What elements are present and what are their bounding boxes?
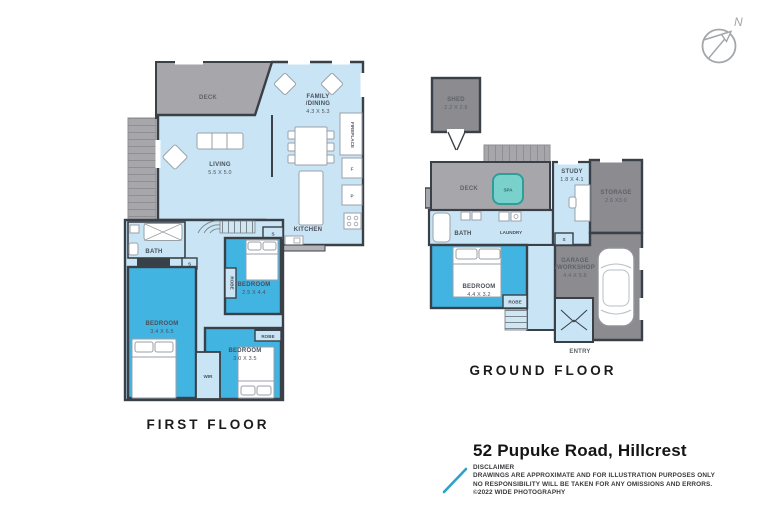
spa-label: SPA <box>503 188 513 193</box>
first-floor-caption: FIRST FLOOR <box>128 417 288 432</box>
storage-room <box>590 160 642 233</box>
storage-label: STORAGE <box>600 190 631 196</box>
photography-logo-icon <box>440 466 470 496</box>
robe-2-label: ROBE <box>230 276 235 289</box>
study-label: STUDY <box>561 169 583 175</box>
garage-label-1: GARAGE <box>561 258 589 264</box>
robe-label: ROBE <box>508 300 521 305</box>
shed-label: SHED <box>447 97 465 103</box>
disclaimer-heading: DISCLAIMER <box>473 464 750 472</box>
basin-icon <box>130 225 139 233</box>
disclaimer-line-2: NO RESPONSIBILITY WILL BE TAKEN FOR ANY … <box>473 481 750 489</box>
family-label-2: /DINING <box>306 101 331 107</box>
desk-icon <box>575 185 590 221</box>
title-block: 52 Pupuke Road, Hillcrest DISCLAIMER DRA… <box>440 441 750 497</box>
living-dims: 5.5 X 5.0 <box>208 170 231 176</box>
deck-stairs <box>484 145 550 162</box>
washer-icon <box>499 212 509 221</box>
garage-label-2: /WORKSHOP <box>555 265 595 271</box>
disclaimer-line-1: DRAWINGS ARE APPROXIMATE AND FOR ILLUSTR… <box>473 472 750 480</box>
dryer-icon <box>511 212 521 221</box>
floorplan-sheet: FIREPLACE F P <box>0 0 768 512</box>
wir-label: WIR <box>204 374 214 379</box>
cupboard-kitchen-label: S <box>271 232 274 237</box>
wardrobe-band <box>137 258 170 266</box>
fireplace-label: FIREPLACE <box>350 122 355 148</box>
deck-area <box>156 62 272 118</box>
deck-label: DECK <box>199 95 217 101</box>
bathtub <box>433 213 450 242</box>
bath-label: BATH <box>145 249 162 255</box>
ground-floor-caption: GROUND FLOOR <box>453 363 633 378</box>
toilet-icon <box>129 243 138 255</box>
bedroom1-label: BEDROOM <box>145 321 178 327</box>
shed-dims: 2.2 X 2.6 <box>444 105 467 111</box>
disclaimer-line-3: ©2022 WIDE PHOTOGRAPHY <box>473 489 750 497</box>
stair-treads <box>220 221 255 233</box>
fridge-label: F <box>351 167 354 172</box>
bedroom2-dims: 2.5 X 4.4 <box>242 290 265 296</box>
bed-3 <box>238 347 274 398</box>
bedroom-dims: 4.4 X 3.2 <box>467 292 490 298</box>
kitchen-label: KITCHEN <box>294 227 322 233</box>
cupboard-hall-label: S <box>188 262 191 267</box>
north-label: N <box>734 15 743 29</box>
hall-corridor <box>527 245 555 330</box>
pantry-label: P <box>350 194 353 199</box>
robe-3-label: ROBE <box>261 334 274 339</box>
bedroom2-label: BEDROOM <box>237 282 270 288</box>
bedroom-label: BEDROOM <box>462 284 495 290</box>
storage-dims: 2.6 X3.0 <box>605 198 627 204</box>
disclaimer-text: DISCLAIMER DRAWINGS ARE APPROXIMATE AND … <box>473 464 750 497</box>
dining-table <box>288 127 334 165</box>
north-compass-icon: N <box>694 12 754 72</box>
bed-1 <box>132 339 176 398</box>
kitchen-sink-unit <box>285 236 303 245</box>
family-label-1: FAMILY <box>307 94 330 100</box>
garage-dims: 4.4 X 5.8 <box>563 273 586 279</box>
first-floor-plan: FIREPLACE F P <box>120 55 370 413</box>
bedroom3-label: BEDROOM <box>228 348 261 354</box>
living-label: LIVING <box>209 162 231 168</box>
bedroom1-dims: 3.4 X 6.5 <box>150 329 173 335</box>
basin-icon <box>461 212 470 220</box>
family-dims: 4.3 X 5.3 <box>306 109 329 115</box>
cupboard-label: S <box>562 237 565 242</box>
lower-stairs <box>505 310 527 330</box>
chair-icon <box>569 197 576 208</box>
car-icon <box>598 248 634 326</box>
entry-label: ENTRY <box>569 349 590 355</box>
deck-area <box>431 162 550 210</box>
bedroom3-dims: 3.0 X 3.5 <box>233 356 256 362</box>
bed-2 <box>246 240 278 280</box>
shed-door-icon <box>448 132 465 150</box>
bath-label: BATH <box>454 231 471 237</box>
property-address: 52 Pupuke Road, Hillcrest <box>473 441 750 461</box>
kitchen-island <box>299 171 323 225</box>
stove-icon <box>344 213 361 229</box>
basin-icon-2 <box>472 212 481 220</box>
shed <box>432 78 480 150</box>
entry-vestibule <box>555 298 593 342</box>
robe-3-band <box>255 328 281 331</box>
ground-floor-plan: SHED 2.2 X 2.6 DECK SPA S <box>425 70 675 395</box>
study-dims: 1.8 X 4.1 <box>560 177 583 183</box>
laundry-label: LAUNDRY <box>500 230 522 235</box>
deck-label: DECK <box>460 186 478 192</box>
